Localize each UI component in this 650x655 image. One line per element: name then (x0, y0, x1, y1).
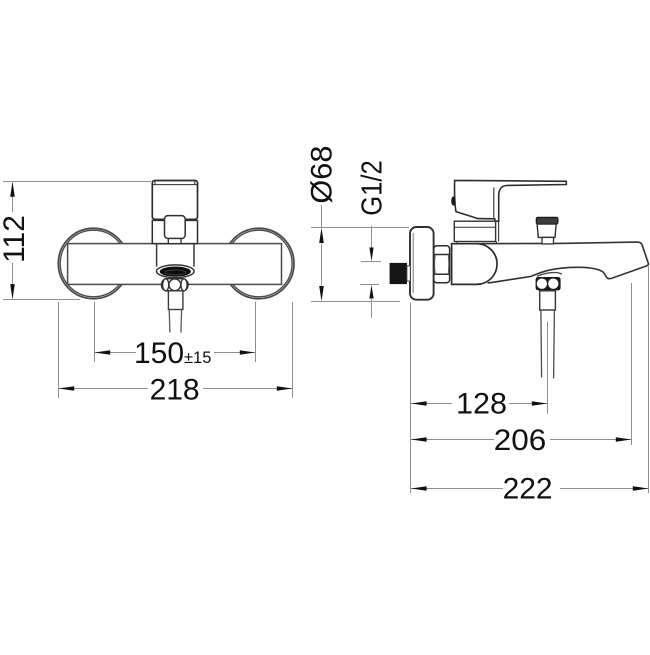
svg-text:±15: ±15 (184, 349, 211, 367)
svg-text:206: 206 (494, 424, 547, 457)
svg-text:218: 218 (150, 374, 200, 407)
svg-text:G1/2: G1/2 (356, 160, 388, 216)
svg-text:128: 128 (456, 388, 507, 421)
svg-text:112: 112 (0, 215, 31, 263)
svg-text:222: 222 (503, 472, 553, 505)
svg-text:150: 150 (134, 337, 184, 370)
svg-text:Ø68: Ø68 (306, 146, 339, 204)
